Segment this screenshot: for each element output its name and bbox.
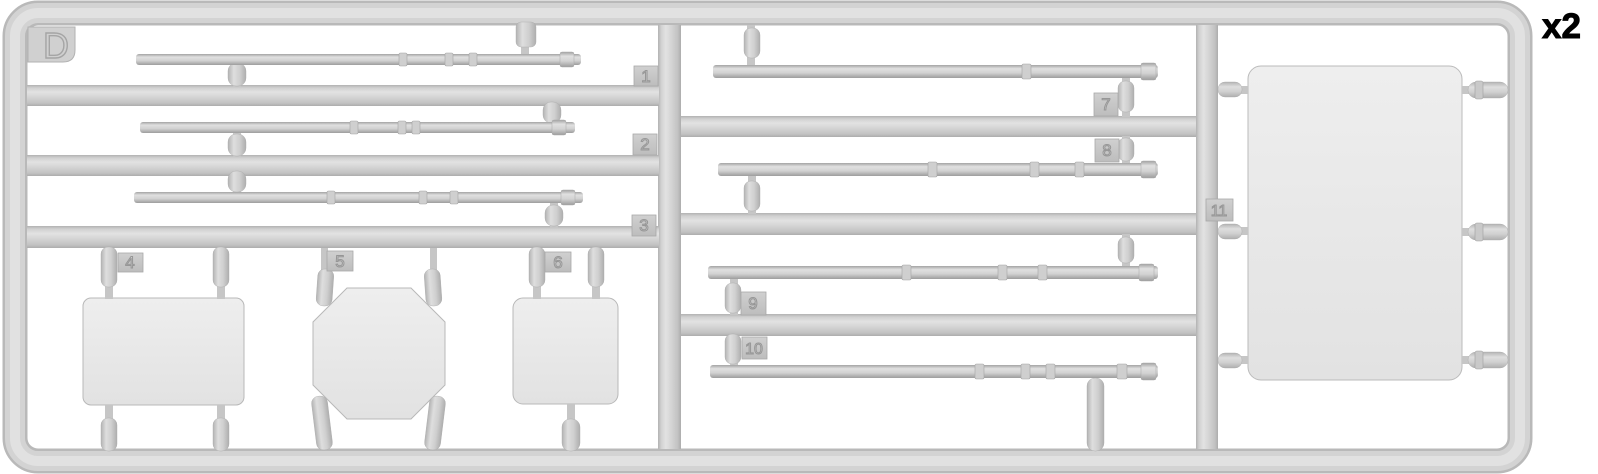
svg-text:2: 2: [640, 135, 649, 154]
svg-text:6: 6: [553, 253, 562, 272]
svg-text:8: 8: [1102, 141, 1111, 160]
svg-text:4: 4: [125, 253, 134, 272]
svg-text:11: 11: [1211, 203, 1228, 220]
svg-text:x2: x2: [1542, 7, 1581, 46]
svg-text:1: 1: [641, 67, 650, 86]
svg-text:7: 7: [1101, 95, 1110, 114]
svg-text:5: 5: [335, 252, 344, 271]
svg-text:10: 10: [745, 341, 763, 358]
svg-text:D: D: [43, 25, 69, 66]
svg-text:9: 9: [748, 294, 757, 313]
svg-text:3: 3: [639, 216, 648, 235]
